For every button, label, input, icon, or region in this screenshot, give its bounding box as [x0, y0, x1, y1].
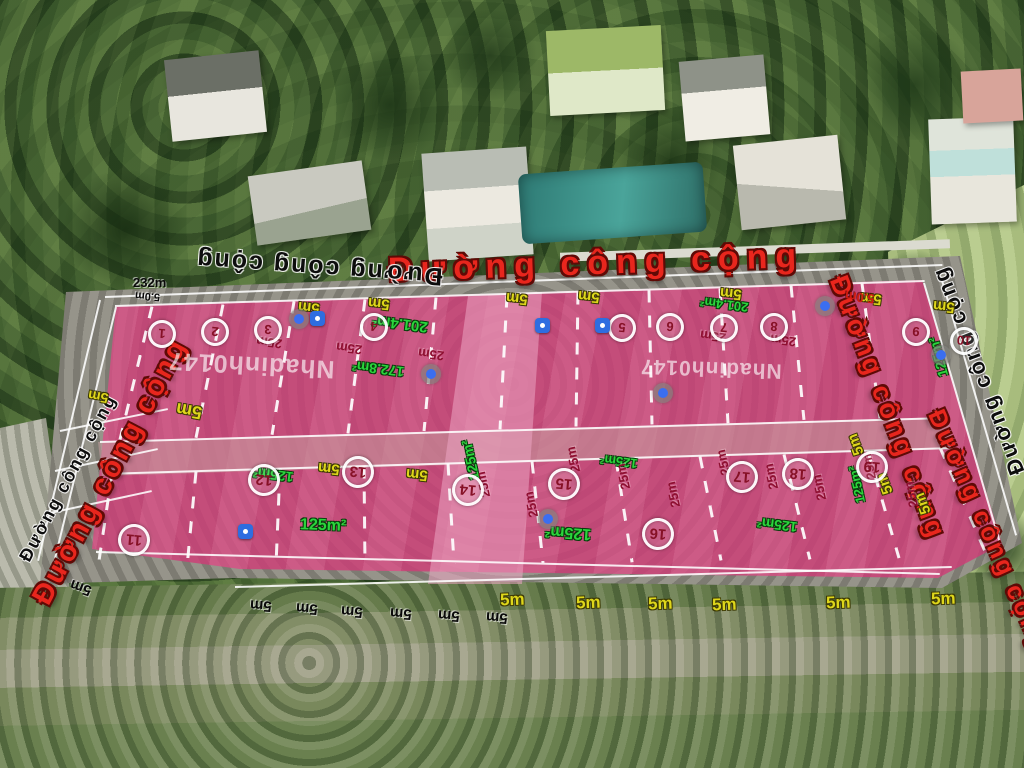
width-dim-label-black: 5m	[341, 603, 364, 619]
area-label: 125m²	[544, 522, 591, 541]
width-dim-label: 5m	[648, 595, 673, 613]
blue-badge-icon	[535, 318, 550, 333]
width-dim-label: 5m	[712, 596, 737, 614]
width-dim-label: 5m	[719, 285, 742, 302]
house-block	[961, 68, 1024, 123]
tree-blob	[60, 170, 190, 290]
blue-badge-icon	[310, 311, 325, 326]
width-dim-label: 5m	[175, 400, 204, 422]
house-block	[679, 54, 771, 141]
house-block	[928, 117, 1017, 225]
width-dim-label: 5m	[500, 591, 525, 609]
blue-marker-dot	[936, 350, 946, 360]
watermark-text: Nhadinh0147	[640, 356, 782, 382]
blue-marker-dot	[658, 388, 668, 398]
width-dim-label-black: 5m	[438, 607, 461, 623]
house-block	[421, 146, 533, 261]
width-dim-label: 5m	[931, 590, 956, 608]
road-width-label: 5.0m	[135, 289, 161, 302]
tree-blob	[440, 10, 540, 100]
blue-marker-dot	[543, 514, 553, 524]
blue-badge-icon	[595, 318, 610, 333]
width-dim-label-black: 5m	[250, 597, 273, 613]
tree-blob	[330, 50, 450, 160]
road-width-label: 5.0m	[844, 289, 875, 305]
aerial-land-plot-photo: Đường công cộng Đường công cộng Đường cô…	[0, 0, 1024, 768]
house-block	[546, 25, 665, 116]
width-dim-label-black: 5m	[390, 605, 413, 621]
width-dim-label: 5m	[367, 295, 390, 312]
width-dim-label: 5m	[932, 298, 955, 315]
width-dim-label: 5m	[87, 388, 109, 405]
house-block	[164, 50, 267, 141]
house-block	[733, 135, 846, 231]
blue-marker-dot	[294, 314, 304, 324]
area-label: 125m²	[300, 517, 347, 535]
depth-dim-label: 25m	[417, 346, 444, 362]
blue-marker-dot	[820, 301, 830, 311]
width-dim-label: 5m	[577, 288, 600, 305]
width-dim-label-black: 5m	[296, 600, 319, 616]
width-dim-label-black: 5m	[486, 609, 509, 625]
depth-dim-label: 25m	[335, 340, 362, 356]
pond	[518, 162, 707, 245]
blue-badge-icon	[238, 524, 253, 539]
width-dim-label: 5m	[576, 594, 601, 612]
width-dim-label: 5m	[826, 594, 851, 612]
frontage-dim-label: 232m	[133, 276, 166, 289]
width-dim-label: 5m	[505, 290, 528, 307]
width-dim-label: 5m	[405, 466, 428, 483]
blue-marker-dot	[426, 369, 436, 379]
width-dim-label: 5m	[317, 460, 340, 477]
